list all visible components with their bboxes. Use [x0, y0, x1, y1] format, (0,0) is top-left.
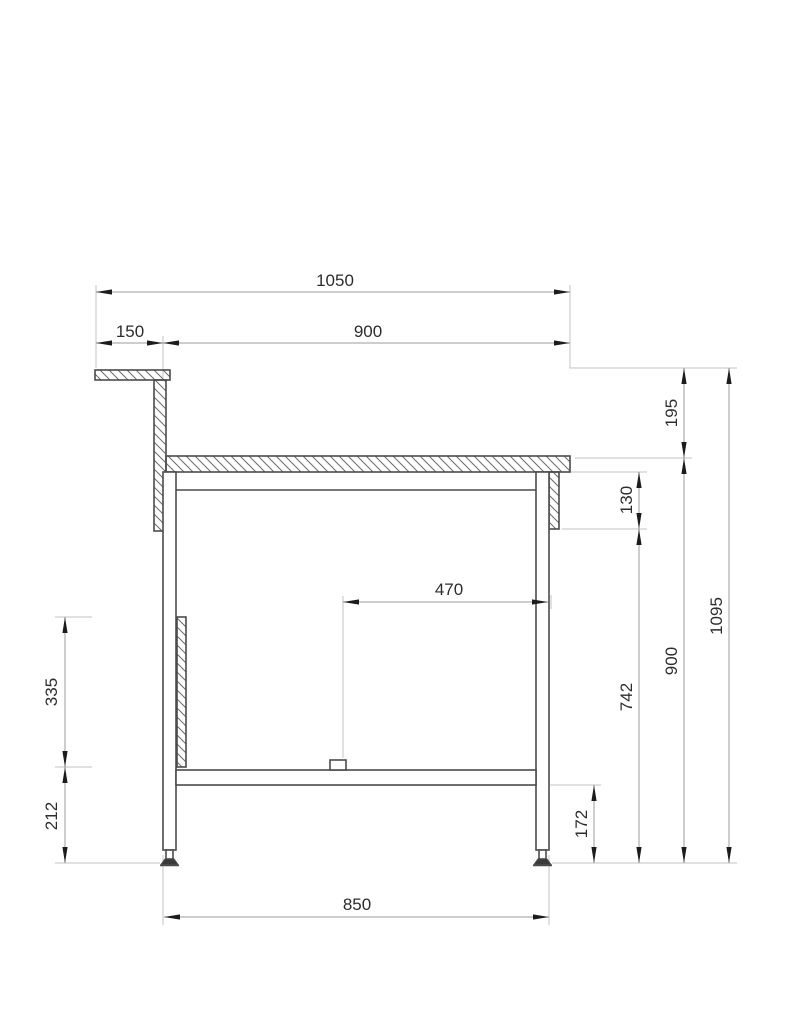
dim-label-1050: 1050	[316, 271, 354, 290]
dim-overall-height: 1095	[707, 368, 732, 863]
left-leg	[163, 472, 176, 850]
dim-label-1095: 1095	[707, 597, 726, 635]
dim-label-850: 850	[343, 895, 371, 914]
dim-apron-depth: 130	[617, 472, 642, 529]
drawing-sheet: 1050 150 900 470 850 195 130 742	[0, 0, 809, 1024]
lower-shelf	[176, 770, 536, 785]
right-leg	[536, 472, 549, 850]
dim-side-panel-height: 335	[42, 617, 68, 767]
dim-label-172: 172	[572, 810, 591, 838]
dim-label-900-right: 900	[662, 647, 681, 675]
dim-worktop-width: 900	[163, 322, 570, 346]
dim-label-335: 335	[42, 678, 61, 706]
dim-top-overall-width: 1050	[96, 271, 570, 295]
dim-worktop-height: 900	[662, 458, 687, 863]
upstand-cap	[95, 370, 170, 380]
workbench-drawing: 1050 150 900 470 850 195 130 742	[0, 0, 809, 1024]
dim-label-130: 130	[617, 486, 636, 514]
dim-label-150: 150	[116, 322, 144, 341]
dim-label-212: 212	[42, 802, 61, 830]
dim-label-900-top: 900	[354, 322, 382, 341]
dim-center-span: 470	[343, 580, 548, 605]
worktop	[166, 456, 570, 472]
dim-upstand-cap-offset: 150	[96, 322, 163, 346]
shelf-block	[330, 760, 346, 770]
dim-upstand-above-worktop: 195	[662, 368, 687, 458]
workbench-parts	[95, 370, 570, 866]
side-panel	[177, 617, 186, 767]
dim-label-470: 470	[435, 580, 463, 599]
right-apron	[549, 472, 559, 529]
dim-leg-span: 850	[164, 895, 549, 920]
dim-panel-to-floor: 212	[42, 767, 68, 863]
dim-label-742: 742	[617, 683, 636, 711]
dim-shelf-to-floor: 172	[572, 785, 597, 863]
dim-label-195: 195	[662, 399, 681, 427]
dim-under-shelf-height: 742	[617, 529, 642, 863]
